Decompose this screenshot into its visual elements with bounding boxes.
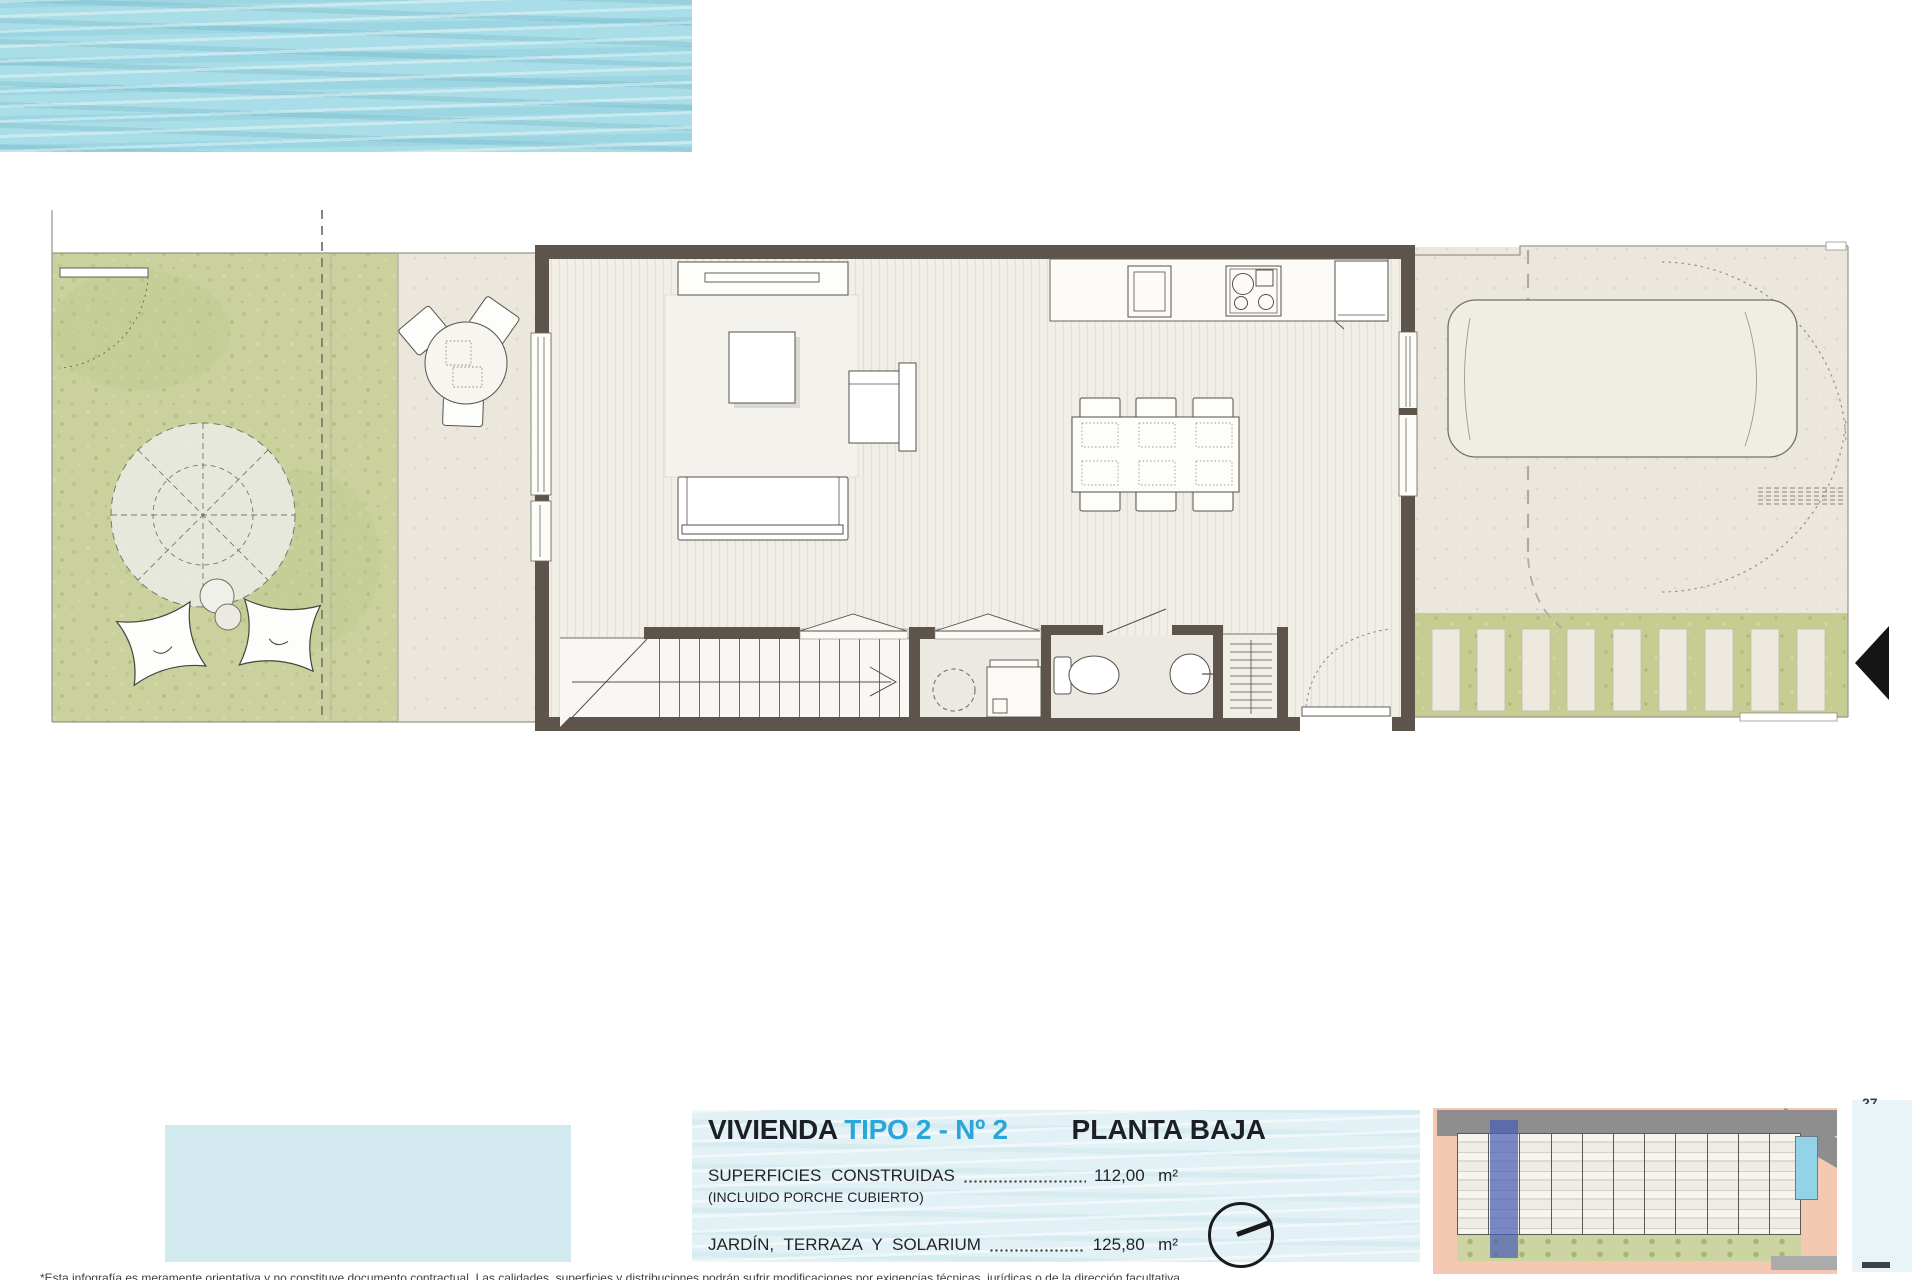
site-road-bottom <box>1771 1256 1837 1270</box>
site-unit <box>1675 1133 1706 1235</box>
title-highlight: TIPO 2 - Nº 2 <box>844 1114 1007 1145</box>
site-unit <box>1738 1133 1769 1235</box>
floor-plan-drawing <box>0 0 1920 1090</box>
site-unit <box>1644 1133 1675 1235</box>
dining-table <box>1072 417 1239 492</box>
kitchen-counter <box>1050 259 1388 329</box>
tv-sideboard <box>678 262 848 295</box>
rear-gate <box>1826 242 1846 250</box>
dotted-leader <box>963 1170 1086 1183</box>
toilet <box>1054 656 1119 694</box>
area-label: SUPERFICIES CONSTRUIDAS <box>708 1166 955 1186</box>
page-edge-strip <box>1852 1100 1912 1272</box>
title-prefix: VIVIENDA <box>708 1114 837 1145</box>
area-row-garden: JARDÍN, TERRAZA Y SOLARIUM 125,80 m² <box>708 1235 1178 1255</box>
car-outline <box>1448 300 1797 457</box>
staircase <box>560 638 909 727</box>
north-indicator-icon <box>1208 1202 1274 1268</box>
plan-level-label: PLANTA BAJA <box>1020 1114 1266 1146</box>
area-label: JARDÍN, TERRAZA Y SOLARIUM <box>708 1235 981 1255</box>
north-needle <box>1236 1219 1272 1236</box>
site-unit <box>1519 1133 1550 1235</box>
armchair <box>849 363 916 451</box>
dotted-leader <box>989 1239 1085 1252</box>
page-number: 27 <box>1862 1096 1896 1104</box>
sofa <box>678 477 848 540</box>
legal-disclaimer: *Esta infografía es meramente orientativ… <box>40 1271 1900 1280</box>
living-window-left <box>531 333 551 561</box>
front-gate <box>1740 713 1837 721</box>
site-locator-map <box>1433 1108 1837 1274</box>
water-photo-inset <box>165 1125 571 1262</box>
highlighted-unit <box>1490 1120 1518 1258</box>
coffee-table <box>729 332 800 408</box>
entry-arrow-icon <box>1855 626 1889 700</box>
site-unit <box>1582 1133 1613 1235</box>
tv <box>705 273 819 282</box>
site-unit <box>1707 1133 1738 1235</box>
kitchen-window-right <box>1399 332 1417 496</box>
area-sublabel: (INCLUIDO PORCHE CUBIERTO) <box>708 1189 1178 1205</box>
area-row-built: SUPERFICIES CONSTRUIDAS 112,00 m² <box>708 1166 1178 1186</box>
site-pool <box>1795 1136 1818 1200</box>
site-unit <box>1551 1133 1582 1235</box>
site-unit <box>1457 1133 1488 1235</box>
dining-set <box>1072 398 1239 511</box>
site-unit <box>1613 1133 1644 1235</box>
stepping-stones <box>1432 629 1825 711</box>
plan-sheet: 27 VIVIENDA TIPO 2 - Nº 2 PLANTA BAJA SU… <box>0 0 1920 1280</box>
water-photo <box>0 0 692 152</box>
fridge <box>1335 261 1388 329</box>
sheet-title: VIVIENDA TIPO 2 - Nº 2 <box>708 1114 1008 1146</box>
laundry-counter <box>987 660 1041 717</box>
surface-areas: SUPERFICIES CONSTRUIDAS 112,00 m² (INCLU… <box>708 1166 1178 1255</box>
page-corner-mark <box>1862 1262 1890 1268</box>
